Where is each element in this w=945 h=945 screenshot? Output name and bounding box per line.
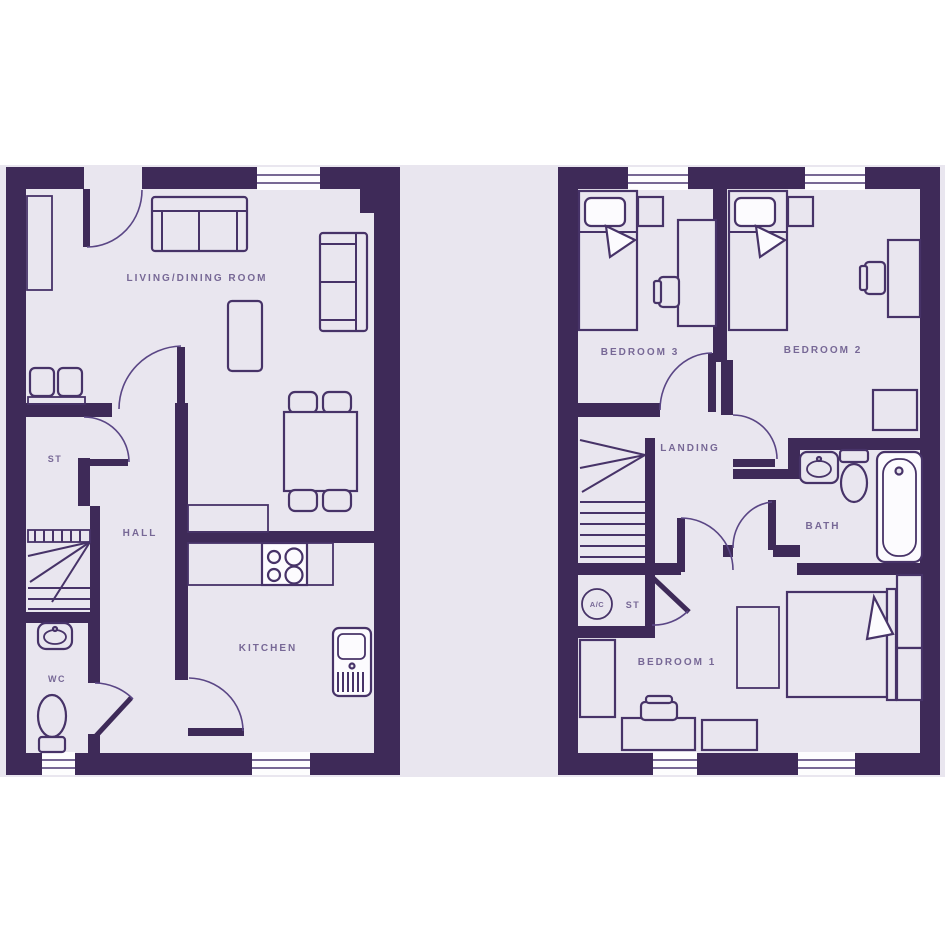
wall-stairs-closet bbox=[578, 563, 655, 575]
label-bedroom3: BEDROOM 3 bbox=[601, 347, 680, 358]
armchair bbox=[320, 233, 367, 331]
bath-toilet bbox=[840, 450, 868, 502]
bedroom1-wardrobe-left bbox=[580, 640, 615, 717]
front-door-opening bbox=[84, 167, 142, 189]
ground-floor-plan: LIVING/DINING ROOM ST HALL WC KITCHEN bbox=[6, 167, 400, 775]
wall-closet-side bbox=[645, 575, 655, 632]
label-wc: WC bbox=[48, 674, 66, 684]
window-kitchen-bottom bbox=[252, 752, 310, 775]
label-hall: HALL bbox=[123, 528, 158, 539]
window-bedroom1-bottom-right bbox=[798, 752, 855, 775]
coffee-table bbox=[228, 301, 262, 371]
wc-toilet bbox=[38, 695, 66, 752]
kitchen-sink bbox=[333, 628, 371, 696]
label-bedroom1: BEDROOM 1 bbox=[638, 657, 717, 668]
wall-stairs-rail-ground bbox=[90, 506, 100, 614]
wall-bed3-landing bbox=[578, 403, 660, 417]
label-st-first: ST bbox=[626, 600, 641, 610]
wall-stairs-wc bbox=[26, 612, 100, 623]
window-living-top bbox=[257, 167, 320, 190]
floorplan-drawing: LIVING/DINING ROOM ST HALL WC KITCHEN bbox=[0, 0, 945, 945]
window-bedroom1-bottom-left bbox=[653, 752, 697, 775]
sofa bbox=[152, 197, 247, 251]
first-floor-plan: A/C ST BEDROOM 3 BEDRO bbox=[558, 167, 940, 775]
bedroom1-wardrobe-right bbox=[897, 575, 922, 700]
wc-basin bbox=[38, 623, 72, 649]
label-landing: LANDING bbox=[660, 443, 720, 454]
wall-hall-kitchen bbox=[175, 403, 188, 680]
wall-bath-top-right bbox=[798, 438, 922, 450]
wall-living-st bbox=[26, 403, 112, 417]
window-bedroom3-top bbox=[628, 167, 688, 190]
bedroom1-bed bbox=[787, 589, 896, 700]
label-st-ground: ST bbox=[48, 454, 63, 464]
wall-closet-bottom bbox=[578, 626, 655, 638]
bedroom1-side-table bbox=[702, 720, 757, 750]
bath-basin bbox=[800, 452, 838, 483]
label-living-dining: LIVING/DINING ROOM bbox=[127, 273, 268, 284]
window-wc-bottom bbox=[42, 752, 75, 775]
wall-wc-side bbox=[88, 623, 100, 683]
bedroom2-bed bbox=[729, 191, 787, 330]
bedroom3-bed bbox=[579, 191, 637, 330]
wall-stairs-rail-first bbox=[645, 438, 655, 565]
bedroom2-bedside-table bbox=[788, 197, 813, 226]
label-bath: BATH bbox=[805, 521, 840, 532]
label-bedroom2: BEDROOM 2 bbox=[784, 345, 863, 356]
hob bbox=[262, 543, 307, 585]
floorplan-page: LIVING/DINING ROOM ST HALL WC KITCHEN bbox=[0, 0, 945, 945]
window-bedroom2-top bbox=[805, 167, 865, 190]
label-kitchen: KITCHEN bbox=[239, 643, 297, 654]
wall-bath-stub-right bbox=[773, 545, 800, 557]
label-ac: A/C bbox=[590, 600, 605, 609]
wall-landing-bed2 bbox=[721, 360, 733, 415]
bedroom3-bedside-table bbox=[638, 197, 663, 226]
wall-bath-bed1 bbox=[797, 563, 922, 575]
bathtub bbox=[877, 452, 922, 562]
wall-chimney-stub bbox=[360, 189, 374, 213]
bedroom2-corner-table bbox=[873, 390, 917, 430]
